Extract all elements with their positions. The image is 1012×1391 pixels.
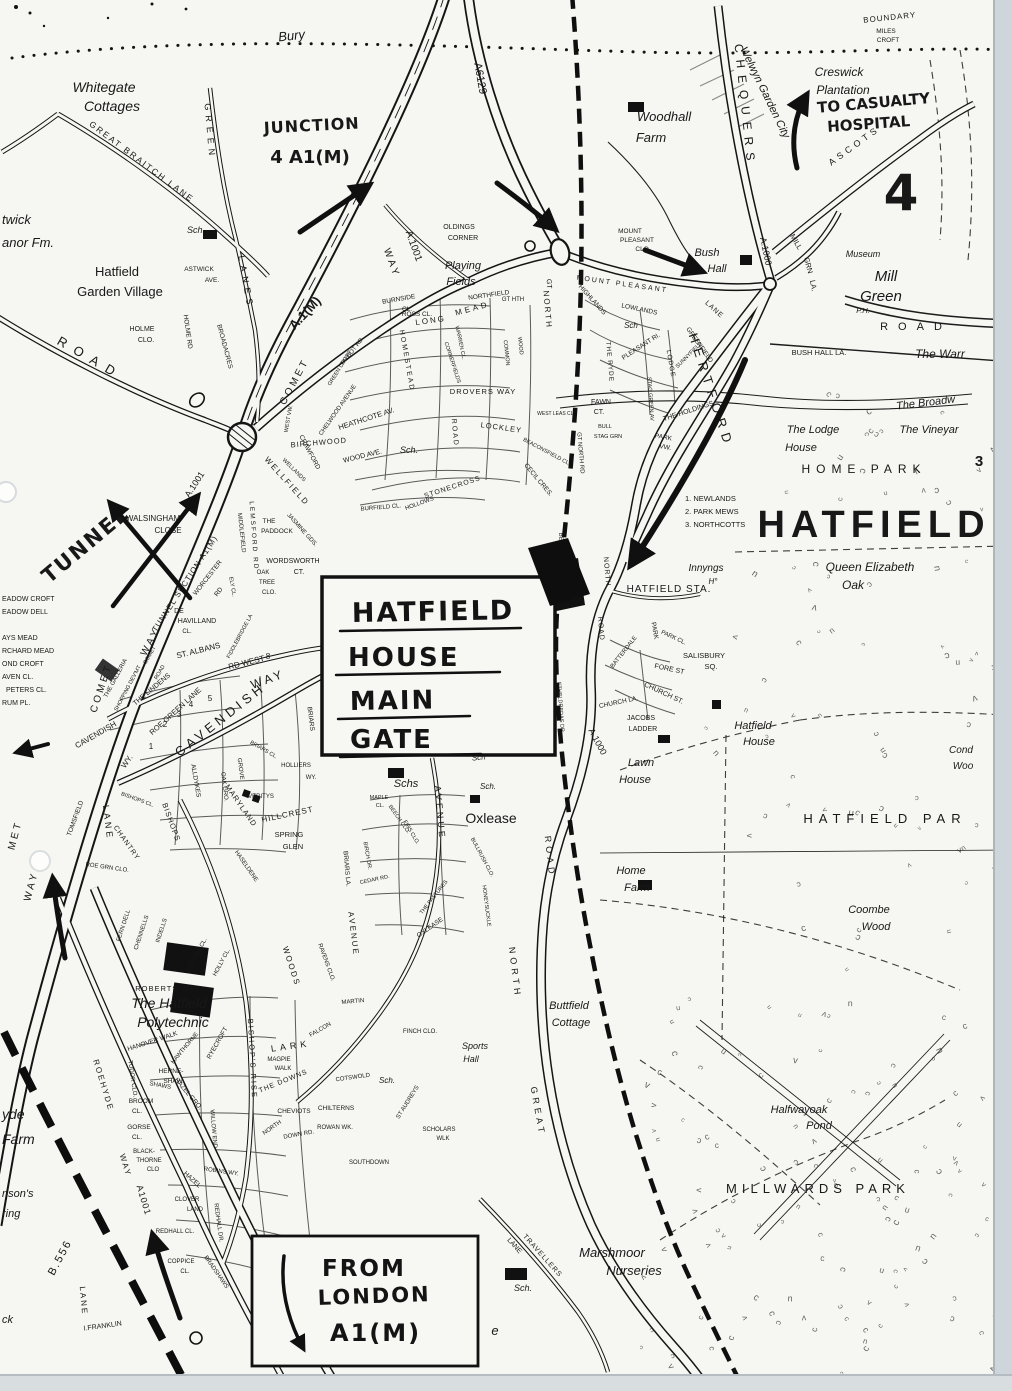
map-label: Halfwayoak bbox=[771, 1104, 828, 1116]
main-gate-line: HOUSE bbox=[348, 643, 459, 673]
map-label: CLOVER bbox=[175, 1197, 200, 1203]
map-label: Farm bbox=[636, 130, 667, 145]
map-label: GT HTH bbox=[502, 297, 524, 303]
map-label: CHEVIOTS bbox=[277, 1108, 311, 1115]
map-label: RUM PL. bbox=[2, 700, 30, 707]
map-label: SOUTHDOWN bbox=[349, 1160, 389, 1166]
tree-symbol: ɔ bbox=[932, 1055, 936, 1062]
map-label: Sch. bbox=[514, 1283, 532, 1293]
scanned-map-page: ɔcɔccɔcnncʌɔncɔncʌncnnccʌɔcʌccnccɔʌʌʌcɔʌ… bbox=[0, 0, 1012, 1391]
map-label: GT bbox=[545, 279, 553, 290]
map-label: yde bbox=[1, 1106, 25, 1122]
map-label: DROVERS WAY bbox=[450, 387, 516, 396]
map-label: LADDER bbox=[629, 726, 657, 733]
tree-symbol: ɔ bbox=[836, 497, 845, 501]
map-label: Home bbox=[616, 865, 645, 877]
map-label: MOUNT bbox=[618, 228, 642, 235]
roundabout-mill-green bbox=[764, 278, 776, 290]
map-label: Pond bbox=[806, 1120, 833, 1132]
scan-edge-right bbox=[994, 0, 1012, 1391]
map-label: RCHARD MEAD bbox=[2, 648, 54, 655]
map-label: BUSH HALL LA. bbox=[792, 348, 847, 357]
map-label: OLDINGS bbox=[443, 224, 475, 231]
map-label: MAPLE bbox=[370, 795, 389, 801]
map-label: WLK bbox=[436, 1136, 449, 1142]
map-label: CL. bbox=[132, 1108, 142, 1115]
map-label: 3 bbox=[177, 710, 182, 719]
tree-symbol: c bbox=[639, 1344, 643, 1351]
map-label: e bbox=[491, 1323, 498, 1338]
map-label: MILES bbox=[876, 28, 896, 35]
map-label: Sports bbox=[462, 1041, 489, 1051]
map-label: Oxlease bbox=[465, 810, 517, 826]
map-label: ring bbox=[2, 1208, 21, 1220]
map-label: Sch bbox=[624, 321, 638, 330]
handwritten-label: 4 A1(M) bbox=[270, 147, 350, 168]
map-label: CT. bbox=[594, 409, 605, 416]
building-school bbox=[505, 1268, 527, 1280]
map-label: EADOW DELL bbox=[2, 609, 48, 616]
map-label: nson's bbox=[2, 1188, 34, 1200]
map-label: Hatfield bbox=[95, 264, 139, 279]
map-label: Cottage bbox=[552, 1017, 591, 1029]
map-label: DE bbox=[174, 608, 184, 615]
map-label: CLO bbox=[147, 1167, 160, 1173]
map-label: 3. NORTHCOTTS bbox=[685, 520, 745, 529]
map-label: THE bbox=[263, 518, 277, 525]
map-label: Hatfield bbox=[734, 720, 772, 732]
map-label: PADDOCK bbox=[261, 528, 293, 535]
map-label: AVEN CL. bbox=[2, 674, 33, 681]
map-label: 8 bbox=[266, 652, 271, 661]
map-label: anor Fm. bbox=[2, 235, 54, 250]
map-label: Polytechnic bbox=[137, 1014, 209, 1030]
map-label: PETERS CL. bbox=[6, 687, 47, 694]
map-label: The Vineyar bbox=[899, 424, 959, 436]
tree-symbol: c bbox=[934, 485, 940, 496]
map-label: Cottages bbox=[84, 98, 140, 114]
map-label: Sch. bbox=[400, 445, 418, 455]
from-london-line: FROM bbox=[322, 1256, 406, 1282]
map-label: Hall bbox=[708, 263, 728, 275]
map-label: 2. PARK MEWS bbox=[685, 507, 739, 516]
map-label: Sch. bbox=[480, 782, 496, 791]
map-label: SALISBURY bbox=[683, 651, 725, 660]
map-label: ROAD bbox=[880, 321, 952, 333]
map-label: ASTWICK bbox=[184, 266, 214, 273]
map-label: WALK bbox=[275, 1066, 292, 1072]
map-label: 1. NEWLANDS bbox=[685, 494, 736, 503]
map-label: HATFIELD STA. bbox=[627, 584, 712, 595]
map-label: Bush bbox=[694, 247, 719, 259]
map-label: AVE. bbox=[205, 277, 220, 284]
building-bush-hall bbox=[740, 255, 752, 265]
map-label: WORDSWORTH bbox=[266, 558, 319, 565]
map-label: Nurseries bbox=[606, 1263, 662, 1278]
map-label: Queen Elizabeth bbox=[826, 560, 915, 574]
map-label: LA. bbox=[808, 279, 819, 292]
map-label: The Hatfield bbox=[131, 995, 208, 1011]
map-label: The Warr bbox=[915, 347, 966, 361]
map-label: TREE bbox=[259, 580, 275, 586]
map-label: FAWN bbox=[591, 399, 611, 406]
map-label: CROFT bbox=[877, 37, 899, 44]
map-label: MILLWARDS PARK bbox=[726, 1181, 910, 1196]
map-label: Hall bbox=[463, 1054, 480, 1064]
map-label: SQ. bbox=[705, 662, 718, 671]
map-label: CLO. bbox=[262, 590, 276, 596]
tree-symbol: c bbox=[820, 1253, 824, 1263]
map-label: House bbox=[785, 442, 817, 454]
map-label: Lawn bbox=[628, 757, 654, 769]
map-label: STAG GRN bbox=[594, 434, 622, 440]
map-label: CL. bbox=[182, 629, 192, 635]
map-label: CORNER bbox=[448, 235, 478, 242]
map-label: COPPICE bbox=[167, 1259, 194, 1265]
tree-symbol: c bbox=[912, 1169, 921, 1173]
hatfield-map: ɔcɔccɔcnncʌɔncɔncʌncnnccʌɔcʌccnccɔʌʌʌcɔʌ… bbox=[0, 0, 1012, 1391]
from-london-line: A1(M) bbox=[330, 1319, 421, 1347]
map-label: Creswick bbox=[815, 65, 865, 79]
map-label: 3 bbox=[975, 453, 983, 470]
map-label: 5 bbox=[208, 694, 213, 703]
map-label: Innyngs bbox=[688, 563, 723, 574]
map-label: CHILTERNS bbox=[318, 1105, 355, 1112]
map-label: 2 bbox=[163, 720, 168, 729]
map-label: OND CROFT bbox=[2, 661, 44, 668]
handwritten-label: 4 bbox=[884, 164, 919, 222]
map-label: CL. bbox=[376, 803, 385, 809]
map-label: HOME PARK bbox=[801, 462, 926, 476]
map-label: BROOM bbox=[129, 1098, 154, 1105]
hole-punch bbox=[30, 851, 50, 871]
tree-symbol: ɔ bbox=[915, 793, 919, 802]
map-label: OAK bbox=[257, 570, 270, 576]
map-label: Museum bbox=[846, 249, 881, 259]
map-label: Mill bbox=[875, 268, 898, 285]
map-label: Schs bbox=[394, 778, 419, 790]
tree-symbol: ɔ bbox=[707, 1346, 716, 1350]
map-label: HOLME bbox=[130, 326, 155, 333]
map-label: ROBERTS WAY bbox=[135, 984, 200, 993]
map-label: Playing bbox=[445, 260, 482, 272]
map-label: EADOW CROFT bbox=[2, 596, 55, 603]
map-label: 4 bbox=[189, 700, 194, 709]
map-label: WEST LEAS CL. bbox=[537, 411, 575, 417]
map-label: GORSE bbox=[127, 1124, 151, 1131]
map-label: Garden Village bbox=[77, 284, 163, 299]
map-label: HATFIELD bbox=[757, 504, 990, 546]
map-label: twick bbox=[2, 212, 32, 227]
map-label: WALSINGHAM bbox=[126, 514, 181, 523]
map-label: JACOBS bbox=[627, 715, 655, 722]
main-gate-line: GATE bbox=[350, 725, 433, 755]
map-label: Sch. bbox=[187, 225, 205, 235]
map-label: 1 bbox=[149, 742, 154, 751]
map-label: House bbox=[619, 774, 651, 786]
map-label: FINCH CLO. bbox=[403, 1029, 437, 1035]
map-label: CL. bbox=[132, 1134, 142, 1141]
map-label: Bury bbox=[277, 27, 307, 45]
main-gate-annotation-box: HATFIELD HOUSE MAIN GATE bbox=[322, 577, 555, 757]
main-gate-line: MAIN bbox=[350, 686, 436, 717]
map-label: Whitegate bbox=[72, 79, 135, 95]
map-label: HAVILLAND bbox=[178, 618, 216, 625]
tree-symbol: n bbox=[955, 658, 961, 668]
map-label: Sch. bbox=[379, 1076, 395, 1085]
map-label: CL. bbox=[180, 1269, 190, 1275]
scan-edge-bottom bbox=[0, 1375, 1012, 1391]
main-gate-line: HATFIELD bbox=[352, 595, 515, 629]
map-label: Woodhall bbox=[637, 109, 692, 124]
map-label: PLEASANT bbox=[620, 237, 654, 244]
map-label: P.H. bbox=[856, 306, 870, 315]
map-label: Oak bbox=[842, 578, 865, 592]
map-label: BLACK- bbox=[133, 1149, 155, 1155]
map-label: HOLLIERS bbox=[281, 763, 311, 769]
map-label: Fields bbox=[446, 276, 476, 288]
map-label: SCHOLARS bbox=[422, 1127, 455, 1133]
map-label: CLO. bbox=[138, 337, 154, 344]
map-label: CT. bbox=[294, 569, 305, 576]
map-label: ROWAN WK. bbox=[317, 1125, 353, 1131]
map-label: WY. bbox=[306, 775, 317, 781]
from-london-line: LONDON bbox=[317, 1282, 431, 1310]
map-label: Cond bbox=[949, 745, 973, 756]
tree-symbol: ɔ bbox=[811, 1164, 820, 1168]
map-label: Coombe bbox=[848, 904, 890, 916]
map-label: Woo bbox=[953, 761, 974, 772]
tree-symbol: n bbox=[787, 1293, 793, 1303]
map-label: Farm bbox=[624, 882, 650, 894]
building-school bbox=[388, 768, 404, 778]
map-label: Buttfield bbox=[549, 1000, 590, 1012]
map-label: LAND bbox=[187, 1207, 204, 1213]
map-label: Marshmoor bbox=[579, 1245, 645, 1260]
map-label: SPRING bbox=[275, 830, 304, 839]
hole-punch bbox=[0, 482, 16, 502]
tree-symbol: n bbox=[848, 998, 853, 1008]
map-label: Green bbox=[860, 288, 902, 305]
map-label: House bbox=[743, 736, 775, 748]
building-school bbox=[203, 230, 217, 239]
map-label: MAGPIE bbox=[267, 1057, 290, 1063]
map-label: ck bbox=[2, 1314, 14, 1326]
map-label: VERITYS bbox=[248, 794, 274, 800]
map-label: Farm bbox=[2, 1131, 35, 1147]
map-label: Wood bbox=[862, 921, 892, 933]
map-label: BULL bbox=[598, 424, 612, 430]
map-label: HATFIELD PAR bbox=[803, 811, 966, 826]
map-label: GLEN bbox=[283, 842, 303, 851]
map-label: HERNE- bbox=[159, 1068, 184, 1075]
map-label: The Lodge bbox=[787, 424, 840, 436]
map-label: REDHALL CL. bbox=[156, 1229, 195, 1235]
map-label: AYS MEAD bbox=[2, 635, 38, 642]
map-label: THORNE bbox=[136, 1158, 161, 1164]
